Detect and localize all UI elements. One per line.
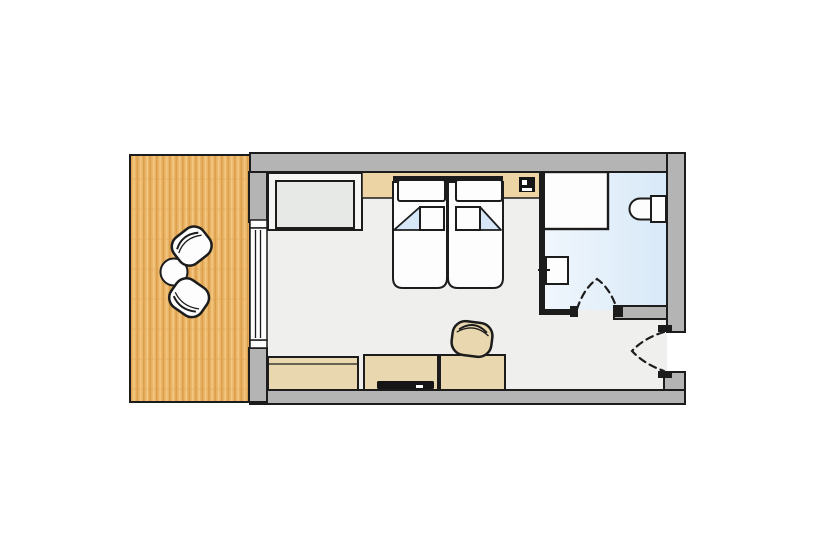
wall-bottom	[250, 390, 685, 404]
pillow-right	[456, 180, 502, 201]
window-icon	[250, 220, 267, 348]
entry-door-jamb-bottom	[658, 371, 672, 378]
tv-icon	[377, 381, 434, 389]
entry-door-jamb-top	[658, 325, 672, 332]
desk-icon	[440, 355, 505, 390]
shower-tray-icon	[542, 172, 608, 229]
wall-safe-icon	[519, 177, 535, 192]
sofa-bench-icon	[268, 173, 362, 230]
floor-plan-page	[0, 0, 820, 560]
wall-top	[250, 153, 685, 172]
wall-right-upper	[667, 153, 685, 332]
window-stub-top	[249, 172, 267, 222]
toilet-icon	[630, 196, 667, 222]
desk-chair-icon	[450, 320, 494, 359]
floor-plan-canvas	[0, 0, 820, 560]
window-stub-bottom	[249, 348, 267, 402]
pillow-left	[398, 180, 445, 201]
bathroom-door-jamb-right	[614, 305, 623, 317]
bathroom-wall-left	[539, 172, 545, 315]
sideboard-icon	[268, 357, 358, 390]
